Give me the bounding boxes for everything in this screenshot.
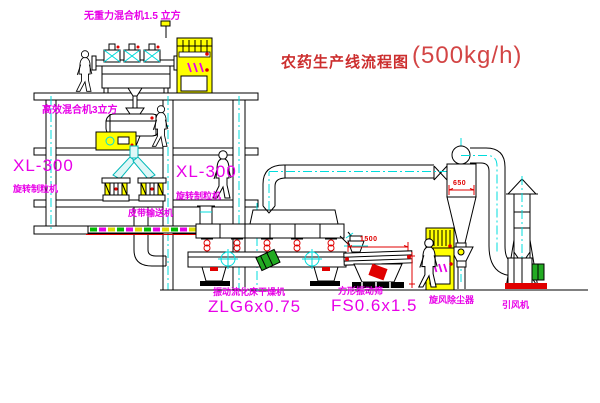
- antenna: [161, 21, 170, 38]
- label-cyclone: 旋风除尘器: [429, 296, 474, 305]
- control-cabinet-1: [177, 38, 212, 93]
- label-granulator-left-name: 旋转制粒机: [13, 185, 58, 194]
- person-top-floor: [76, 51, 91, 92]
- high-efficiency-mixer: [96, 114, 160, 150]
- label-top-mixer: 无重力混合机1.5 立方: [84, 12, 181, 23]
- label-sieve-model: FS0.6x1.5: [331, 297, 418, 315]
- dimension-cyclone-body: 650: [453, 180, 466, 187]
- label-granulator-left-model: XL-300: [13, 157, 74, 175]
- vibrating-sieve: [344, 236, 415, 288]
- title-chinese: 农药生产线流程图: [281, 51, 409, 72]
- granulator-right: [138, 178, 166, 201]
- induced-draft-fan: [505, 258, 547, 289]
- title-capacity: (500kg/h): [412, 42, 522, 70]
- label-dryer-model: ZLG6x0.75: [208, 298, 301, 316]
- label-belt-conveyor: 皮带输送机: [128, 209, 173, 218]
- diagram-title: 农药生产线流程图 (500kg/h): [281, 42, 522, 72]
- label-high-efficiency-mixer: 高效混合机3立方: [42, 106, 118, 117]
- label-granulator-right-name: 旋转制粒机: [176, 192, 221, 201]
- label-fan: 引风机: [502, 301, 529, 310]
- label-granulator-right-model: XL-300: [176, 163, 237, 181]
- granulator-left: [102, 178, 130, 201]
- dimension-sieve-length: 1500: [360, 236, 378, 243]
- exhaust-duct: [263, 165, 458, 213]
- fluid-bed-dryer: [188, 203, 358, 292]
- cad-flow-diagram: 农药生产线流程图 (500kg/h) 无重力混合机1.5 立方 高效混合机3立方…: [0, 0, 600, 403]
